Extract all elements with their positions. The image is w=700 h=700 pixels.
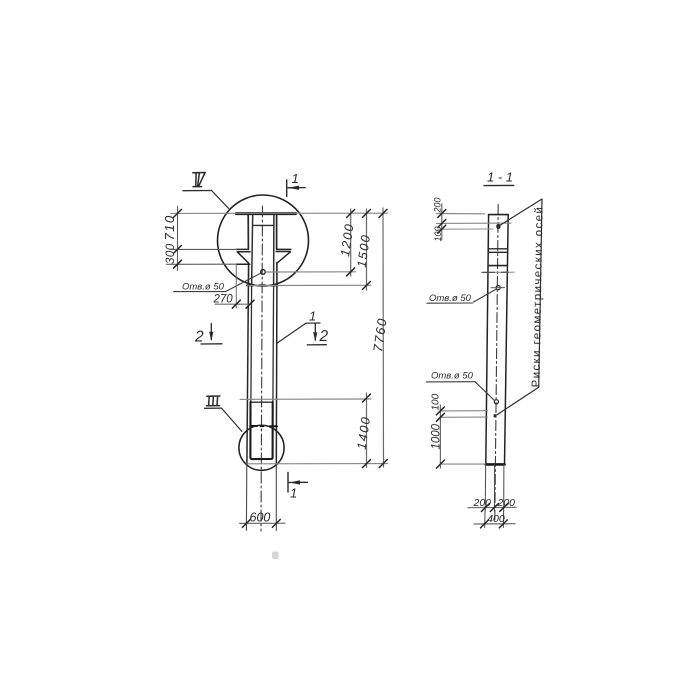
svg-text:1: 1 — [292, 171, 299, 186]
svg-text:Отв.ø 50: Отв.ø 50 — [182, 282, 225, 293]
svg-text:100: 100 — [431, 393, 442, 410]
svg-text:7760: 7760 — [370, 316, 390, 353]
svg-text:Отв.ø 50: Отв.ø 50 — [429, 293, 472, 304]
svg-text:1200: 1200 — [338, 222, 357, 257]
svg-text:Риски геометрических осей: Риски геометрических осей — [531, 206, 546, 388]
svg-text:710: 710 — [162, 214, 177, 240]
svg-text:200: 200 — [433, 197, 443, 213]
svg-text:1400: 1400 — [355, 415, 374, 450]
svg-text:1500: 1500 — [355, 233, 374, 268]
svg-text:1: 1 — [309, 309, 316, 324]
svg-text:200: 200 — [473, 497, 492, 509]
svg-text:2: 2 — [194, 329, 204, 346]
svg-text:2: 2 — [319, 328, 329, 345]
svg-text:100: 100 — [433, 226, 443, 241]
svg-text:600: 600 — [250, 511, 271, 525]
svg-text:1: 1 — [290, 486, 297, 501]
svg-text:200: 200 — [497, 497, 516, 509]
svg-text:1 - 1: 1 - 1 — [487, 170, 513, 185]
svg-text:300: 300 — [165, 243, 177, 264]
svg-text:270: 270 — [213, 293, 234, 305]
svg-text:Отв.ø 50: Отв.ø 50 — [431, 371, 474, 382]
svg-text:400: 400 — [487, 513, 505, 525]
svg-text:1000: 1000 — [431, 423, 443, 449]
